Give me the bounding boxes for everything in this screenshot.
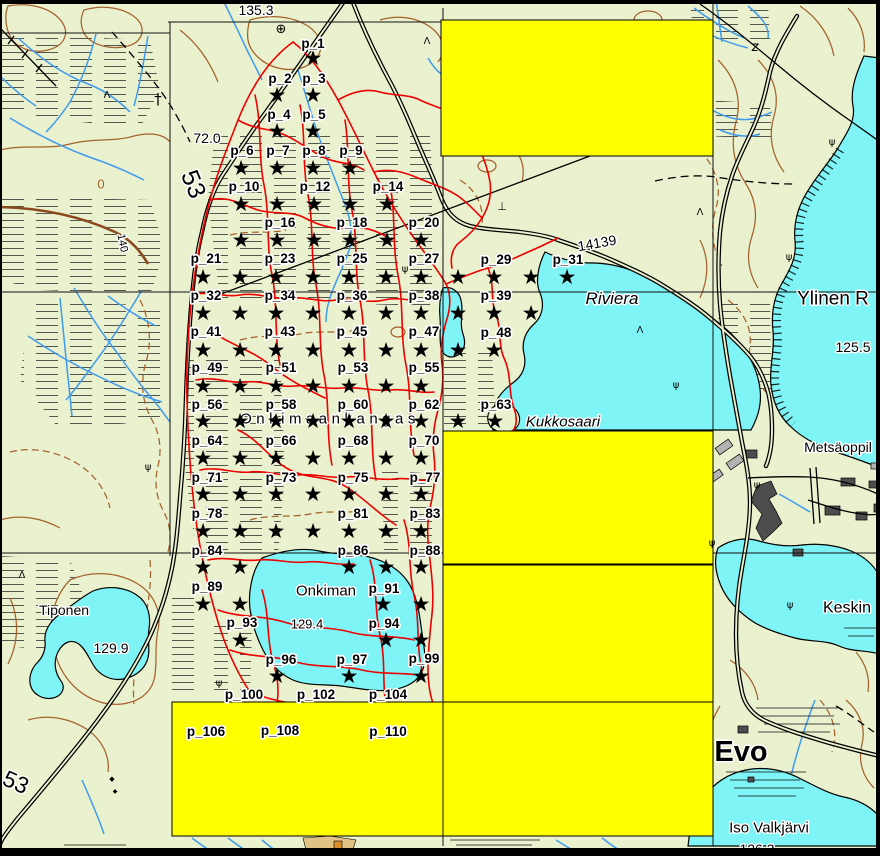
monument-icon: ⊥ [497,200,507,213]
tree-icon: Λ [637,325,644,336]
sample-point-star[interactable]: ★ [304,374,323,398]
place-label: Kukkosaari [526,413,601,430]
sample-point-label: p_51 [266,360,297,375]
sample-point-label: p_70 [409,433,440,448]
sample-point-label: p_38 [409,288,440,303]
sample-point-star[interactable]: ★ [267,409,286,433]
sample-point-star[interactable]: ★ [412,228,431,252]
water-tuft-icon: ψ [829,137,836,148]
sample-point-label: p_48 [481,325,512,340]
sample-point-label: p_36 [337,288,368,303]
place-label: 129.4 [291,617,324,632]
sample-point-star[interactable]: ★ [304,338,323,362]
sample-point-label: p_8 [302,143,326,158]
sample-point-label: p_71 [192,470,223,485]
sample-point-label: p_100 [225,687,263,702]
sample-point-star[interactable]: ★ [341,192,360,216]
sample-point-star[interactable]: ★ [194,446,213,470]
highlight-rectangle[interactable] [443,565,713,702]
sample-point-star[interactable]: ★ [231,338,250,362]
sample-point-label: p_102 [297,687,335,702]
sample-point-star[interactable]: ★ [377,446,396,470]
sample-point-label: p_20 [409,215,440,230]
sample-point-star[interactable]: ★ [378,192,397,216]
sample-point-star[interactable]: ★ [231,482,250,506]
place-label: 125.5 [835,339,870,355]
sample-point-star[interactable]: ★ [304,482,323,506]
sample-point-label: p_104 [369,687,408,702]
sample-point-star[interactable]: ★ [412,664,431,688]
sample-point-label: p_108 [261,723,300,738]
sample-point-star[interactable]: ★ [267,338,286,362]
sample-point-star[interactable]: ★ [267,519,286,543]
place-label: Ylinen R [797,289,869,310]
sample-point-star[interactable]: ★ [485,301,504,325]
sample-point-star[interactable]: ★ [340,265,359,289]
sample-point-label: p_53 [338,360,369,375]
sample-point-star[interactable]: ★ [231,446,250,470]
sample-point-star[interactable]: ★ [377,482,396,506]
place-label: Metsäoppil [804,439,872,455]
sample-point-star[interactable]: ★ [412,338,431,362]
sample-point-label: p_56 [192,397,223,412]
topographic-map[interactable]: 135.372.05353014014139RivieraKukkosaariY… [0,0,880,856]
place-label: 129.9 [93,640,128,656]
sample-point-label: p_49 [192,360,223,375]
sample-point-star[interactable]: ★ [485,338,504,362]
tree-icon: Λ [697,207,704,218]
sample-point-star[interactable]: ★ [304,265,323,289]
sample-point-label: p_66 [266,433,297,448]
sample-point-star[interactable]: ★ [304,409,323,433]
sample-point-star[interactable]: ★ [377,555,396,579]
sample-point-star[interactable]: ★ [231,519,250,543]
cairn-icon: ◆ [109,775,115,783]
place-label: Onkiman [296,582,356,599]
place-label: Riviera [586,289,639,308]
cairn-icon: ◆ [113,788,118,795]
sample-point-star[interactable]: ★ [231,409,250,433]
sample-point-label: p_91 [369,581,400,596]
sample-point-star[interactable]: ★ [340,664,359,688]
sample-point-star[interactable]: ★ [340,409,359,433]
place-label: 72.0 [193,130,220,146]
sample-point-star[interactable]: ★ [304,119,323,143]
sample-point-star[interactable]: ★ [412,555,431,579]
sample-point-star[interactable]: ★ [232,192,251,216]
sample-point-label: p_68 [338,433,369,448]
sample-point-star[interactable]: ★ [449,265,468,289]
sample-point-label: p_47 [409,324,440,339]
sample-point-label: p_94 [369,616,400,631]
sample-point-label: p_55 [409,360,440,375]
sample-point-star[interactable]: ★ [194,482,213,506]
sample-point-label: p_12 [300,179,331,194]
sample-point-label: p_97 [337,652,368,667]
sample-point-star[interactable]: ★ [378,228,397,252]
sample-point-star[interactable]: ★ [194,338,213,362]
sample-point-star[interactable]: ★ [232,156,251,180]
sample-point-star[interactable]: ★ [305,228,324,252]
sample-point-label: p_14 [373,179,404,194]
sample-point-star[interactable]: ★ [268,156,287,180]
sample-point-star[interactable]: ★ [194,265,213,289]
water-tuft-icon: ψ [786,252,793,263]
sample-point-label: p_25 [337,251,368,266]
sample-point-label: p_18 [337,215,368,230]
sample-point-label: p_16 [265,215,296,230]
sample-point-star[interactable]: ★ [194,301,213,325]
sample-point-label: p_84 [192,543,223,558]
sample-point-label: p_89 [192,579,223,594]
sample-point-label: p_106 [187,724,226,739]
sample-point-star[interactable]: ★ [268,228,287,252]
sample-point-label: p_21 [191,251,222,266]
sample-point-label: p_41 [191,324,222,339]
sample-point-star[interactable]: ★ [449,338,468,362]
sample-point-star[interactable]: ★ [194,592,213,616]
sample-point-label: p_83 [410,506,441,521]
sample-point-star[interactable]: ★ [522,301,541,325]
sample-point-label: p_73 [266,470,297,485]
sample-point-label: p_31 [553,252,584,267]
tree-icon: Λ [424,36,431,47]
sample-point-label: p_63 [481,397,512,412]
sample-point-star[interactable]: ★ [412,592,431,616]
sample-point-star[interactable]: ★ [412,519,431,543]
sample-point-star[interactable]: ★ [304,519,323,543]
sample-point-star[interactable]: ★ [340,301,359,325]
sample-point-star[interactable]: ★ [194,555,213,579]
sample-point-star[interactable]: ★ [267,301,286,325]
sample-point-star[interactable]: ★ [377,628,396,652]
tree-icon: Λ [104,90,111,101]
map-canvas[interactable]: 135.372.05353014014139RivieraKukkosaariY… [0,0,880,856]
sample-point-star[interactable]: ★ [268,83,287,107]
sample-point-label: p_88 [410,543,441,558]
place-label: Iso Valkjärvi [729,819,809,836]
sample-point-label: p_3 [302,71,326,86]
sample-point-label: p_86 [338,543,369,558]
sample-point-star[interactable]: ★ [340,374,359,398]
sample-point-star[interactable]: ★ [412,265,431,289]
sample-point-label: p_23 [265,251,296,266]
sample-point-label: p_43 [265,324,296,339]
sample-point-star[interactable]: ★ [340,482,359,506]
sample-point-label: p_2 [268,71,291,86]
sample-point-label: p_10 [229,179,260,194]
sample-point-star[interactable]: ★ [194,374,213,398]
sample-point-label: p_110 [369,724,407,739]
sample-point-star[interactable]: ★ [231,374,250,398]
sample-point-star[interactable]: ★ [341,156,360,180]
sample-point-star[interactable]: ★ [449,301,468,325]
water-tuft-icon: ψ [787,600,794,611]
sample-point-star[interactable]: ★ [304,156,323,180]
sample-point-star[interactable]: ★ [412,301,431,325]
sample-point-label: p_75 [338,470,369,485]
sample-point-star[interactable]: ★ [267,374,286,398]
sample-point-star[interactable]: ★ [340,338,359,362]
water-tuft-icon: ψ [216,678,223,689]
sample-point-star[interactable]: ★ [377,409,396,433]
sample-point-star[interactable]: ★ [340,555,359,579]
sample-point-label: p_1 [301,36,325,51]
place-label: Tiponen [39,602,89,618]
sample-point-star[interactable]: ★ [304,301,323,325]
sample-point-label: p_45 [337,324,368,339]
water-tuft-icon: ψ [673,380,680,391]
sample-point-star[interactable]: ★ [268,664,287,688]
sample-point-star[interactable]: ★ [231,265,250,289]
sample-point-star[interactable]: ★ [232,228,251,252]
sample-point-star[interactable]: ★ [486,409,505,433]
sample-point-star[interactable]: ★ [412,409,431,433]
sample-point-star[interactable]: ★ [268,119,287,143]
sample-point-star[interactable]: ★ [412,628,431,652]
sample-point-label: p_96 [266,652,297,667]
sample-point-star[interactable]: ★ [268,192,287,216]
sample-point-label: p_5 [302,107,326,122]
sample-point-label: p_34 [265,288,296,303]
sample-point-star[interactable]: ★ [449,409,468,433]
sample-point-star[interactable]: ★ [305,192,324,216]
sample-point-label: p_81 [338,506,369,521]
sample-point-label: p_7 [266,143,289,158]
sample-point-star[interactable]: ★ [412,374,431,398]
water-tuft-icon: ψ [709,538,716,549]
sample-point-label: p_9 [339,143,362,158]
sample-point-label: p_39 [481,288,512,303]
sample-point-label: p_99 [409,651,440,666]
sample-point-star[interactable]: ★ [304,446,323,470]
sample-point-label: p_60 [338,397,369,412]
sample-point-star[interactable]: ★ [377,265,396,289]
sample-point-star[interactable]: ★ [412,482,431,506]
sample-point-star[interactable]: ★ [304,83,323,107]
sample-point-star[interactable]: ★ [485,265,504,289]
sample-point-star[interactable]: ★ [267,482,286,506]
place-label: Evo [714,736,767,768]
sample-point-star[interactable]: ★ [377,338,396,362]
sample-point-star[interactable]: ★ [340,519,359,543]
sample-point-star[interactable]: ★ [340,446,359,470]
sample-point-label: p_62 [409,397,440,412]
sample-point-star[interactable]: ★ [231,592,250,616]
sample-point-star[interactable]: ★ [194,409,213,433]
sample-point-star[interactable]: ★ [267,265,286,289]
place-label: 135.3 [238,2,273,18]
sample-point-star[interactable]: ★ [231,301,250,325]
sample-point-star[interactable]: ★ [341,228,360,252]
sample-point-star[interactable]: ★ [558,265,577,289]
sample-point-star[interactable]: ★ [412,446,431,470]
sample-point-label: p_58 [266,397,297,412]
sample-point-star[interactable]: ★ [267,446,286,470]
sample-point-label: p_4 [267,107,291,122]
sample-point-star[interactable]: ★ [231,628,250,652]
sample-point-star[interactable]: ★ [377,301,396,325]
sample-point-label: p_64 [192,433,223,448]
place-label: Keskin [823,600,871,617]
sample-point-star[interactable]: ★ [231,555,250,579]
highlight-rectangle[interactable] [441,20,713,156]
sample-point-label: p_93 [227,615,258,630]
mast-icon: † [154,90,162,108]
water-tuft-icon: ψ [754,480,761,491]
sample-point-label: p_77 [410,470,441,485]
sample-point-star[interactable]: ★ [194,519,213,543]
place-label: 0 [97,177,104,192]
sample-point-label: p_27 [409,251,440,266]
sample-point-star[interactable]: ★ [522,265,541,289]
gate-icon: z [751,40,760,55]
tree-icon: Λ [19,570,26,581]
sample-point-label: p_78 [192,506,223,521]
sample-point-star[interactable]: ★ [377,374,396,398]
sample-point-star[interactable]: ★ [377,519,396,543]
sample-point-label: p_6 [230,143,254,158]
highlight-rectangle[interactable] [443,431,713,564]
water-tuft-icon: ψ [145,462,152,473]
sample-point-label: p_29 [481,252,512,267]
sample-point-label: p_32 [191,288,222,303]
circle-cross-icon: ⊕ [276,22,287,37]
